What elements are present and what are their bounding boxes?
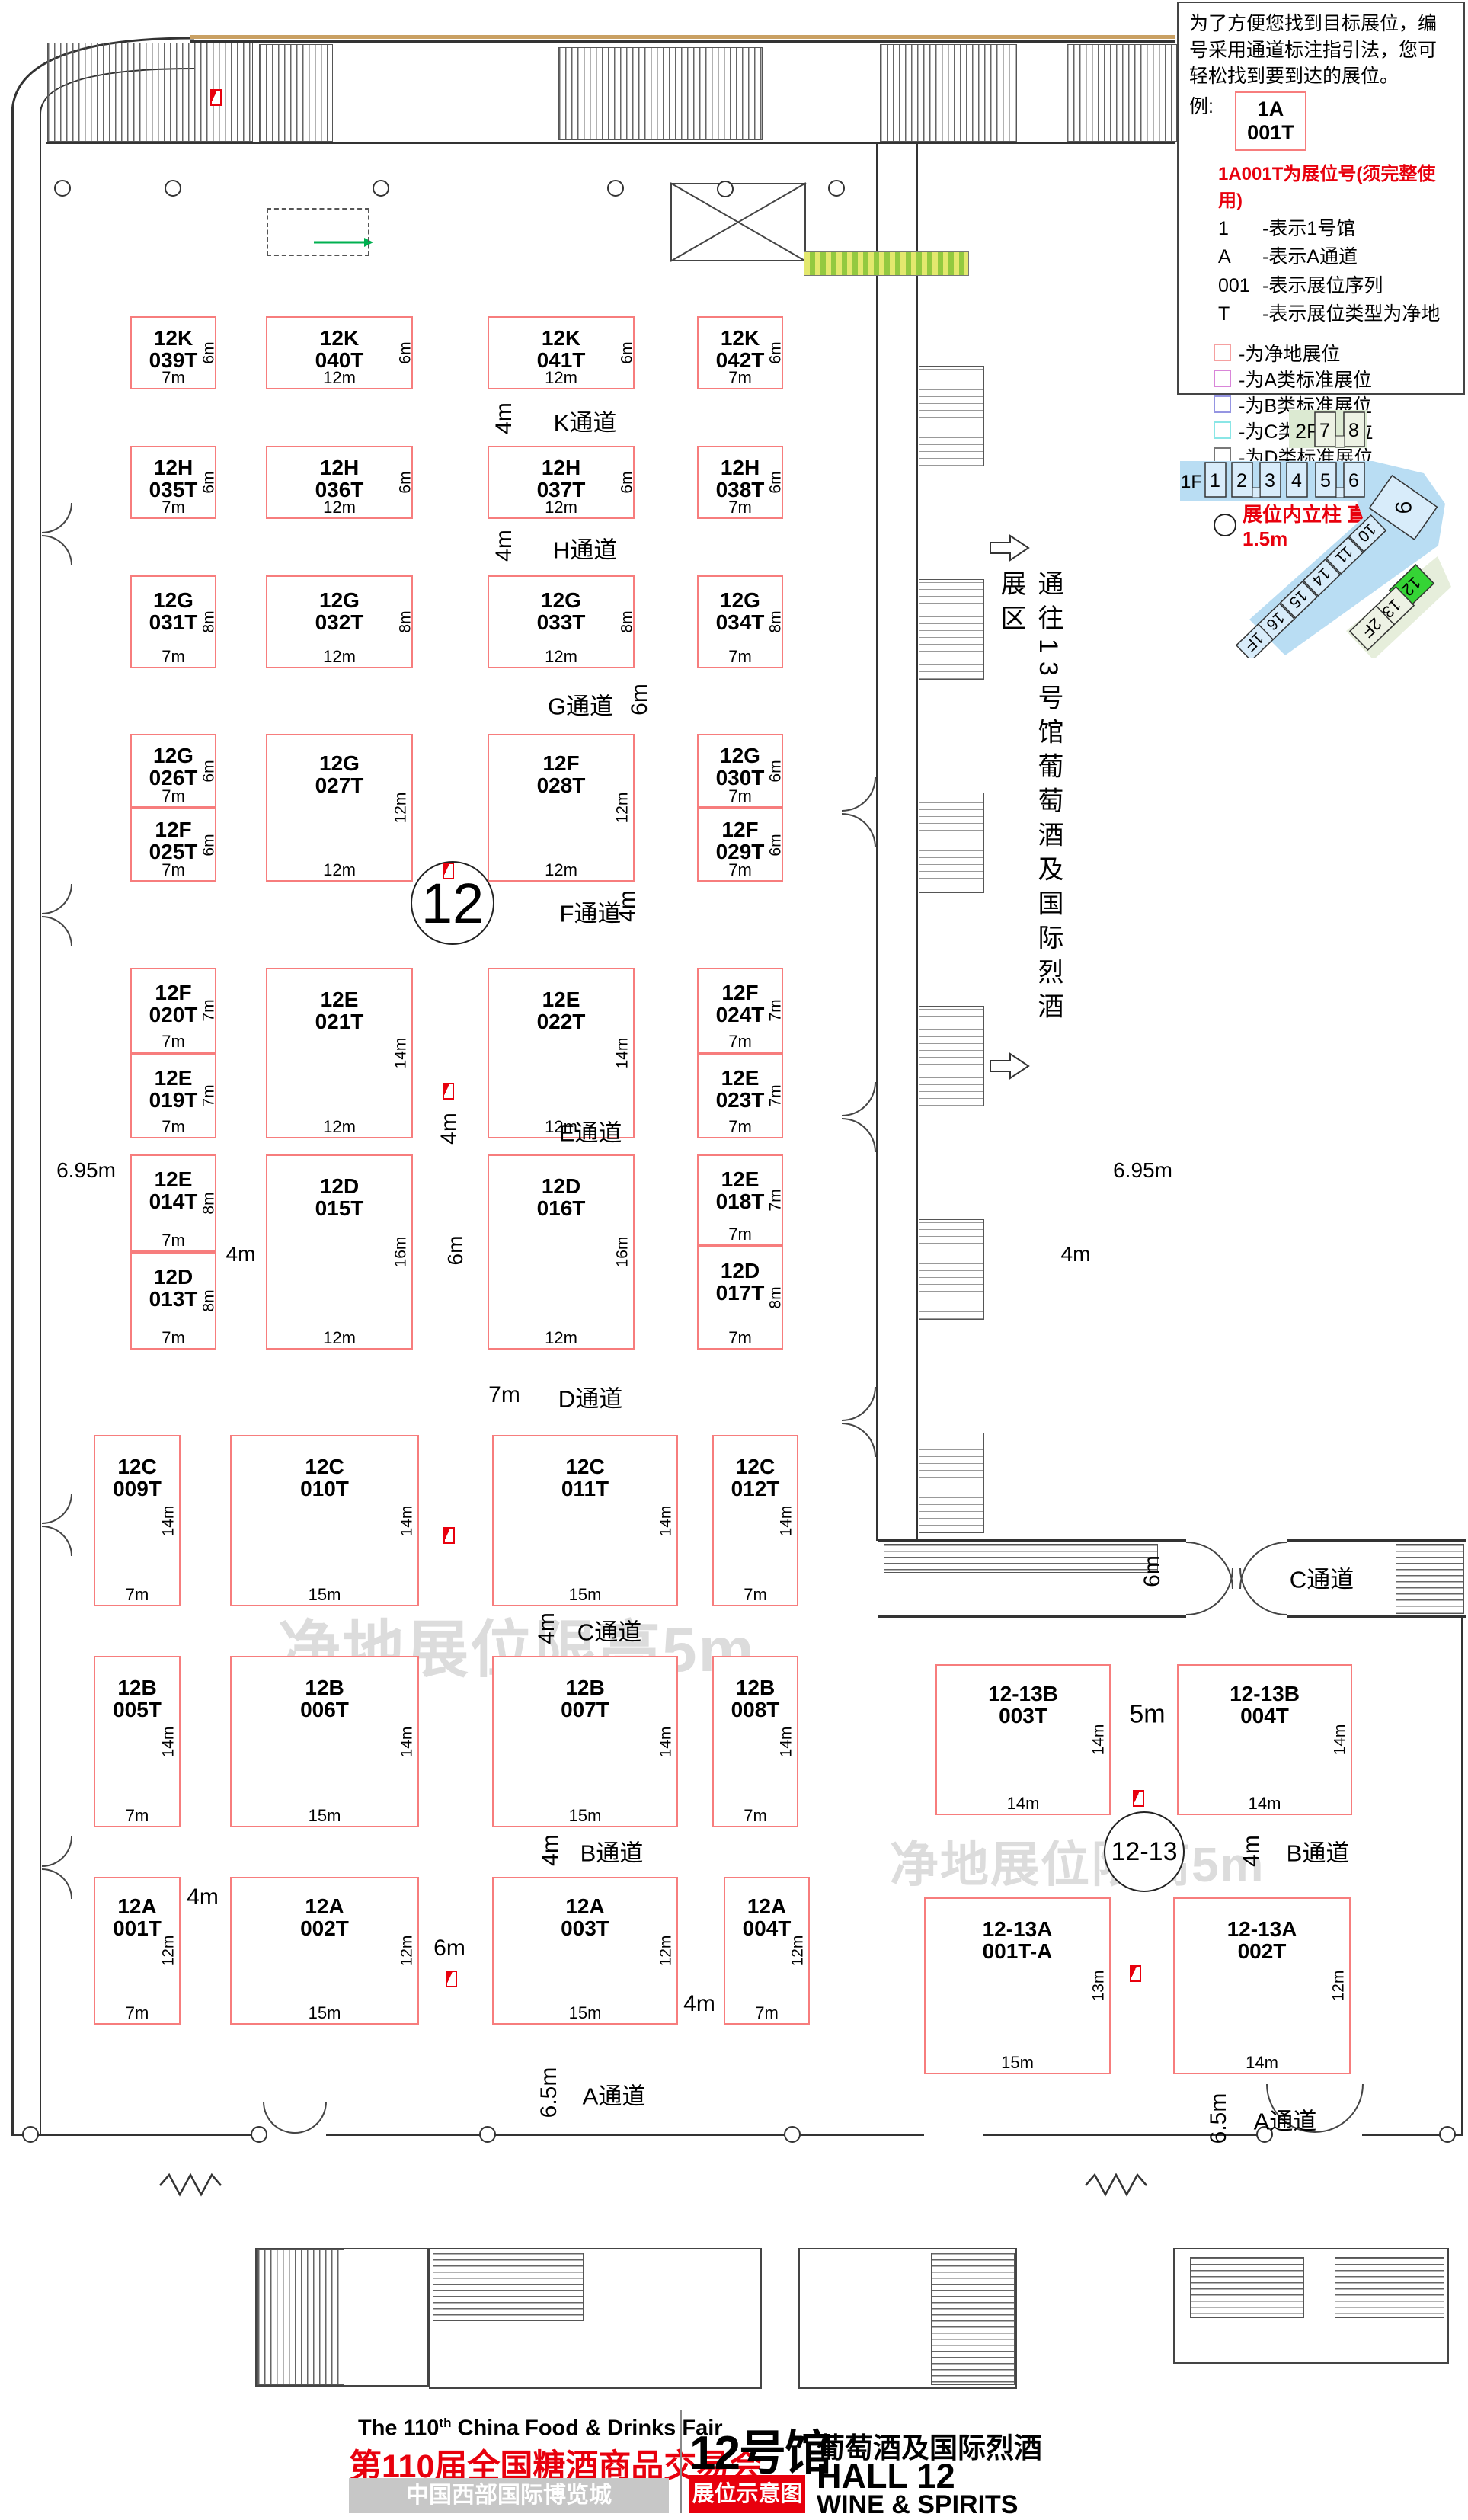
- legend-key-desc: -表示展位序列: [1262, 272, 1383, 301]
- fire-well-icon: [1133, 1790, 1144, 1807]
- booth-depth-label: 14m: [778, 1505, 796, 1536]
- arrow-right-icon: [990, 536, 1028, 560]
- booth-number: 12C010T: [232, 1455, 417, 1500]
- legend-key-row: 1-表示1号馆: [1218, 215, 1453, 244]
- hall-number-circle: 12-13: [1104, 1811, 1185, 1892]
- booth-width-label: 12m: [489, 647, 633, 667]
- aisle-label: B通道: [580, 1834, 644, 1868]
- booth-number: 12E021T: [267, 988, 411, 1033]
- wall-break-zigzag: [1086, 2175, 1147, 2195]
- booth-number: 12G031T: [132, 589, 215, 633]
- column-circle: [607, 180, 624, 197]
- booth-number: 12E022T: [489, 988, 633, 1033]
- dimension-label: 4m: [683, 1991, 715, 2017]
- booth-number: 12K042T: [699, 327, 782, 371]
- booth-12B-005T: 12B005T7m14m: [94, 1656, 181, 1827]
- stair-block: [1067, 44, 1177, 142]
- booth-depth-label: 14m: [392, 1038, 411, 1069]
- dimension-label: 7m: [488, 1382, 520, 1408]
- booth-number: 12H036T: [267, 456, 411, 501]
- booth-12E-018T: 12E018T7m7m: [697, 1154, 783, 1246]
- booth-12D-015T: 12D015T12m16m: [266, 1154, 413, 1350]
- venue-name: 中国西部国际博览城: [349, 2478, 669, 2513]
- svg-text:9: 9: [1390, 501, 1415, 514]
- aisle-label: C通道: [577, 1613, 641, 1647]
- booth-12A-004T: 12A004T7m12m: [724, 1877, 810, 2025]
- dimension-label: 4m: [1061, 1242, 1091, 1266]
- aisle-label: E通道: [559, 1114, 622, 1148]
- booth-number: 12F020T: [132, 981, 215, 1026]
- column-circle: [54, 180, 71, 197]
- booth-number: 12E018T: [699, 1168, 782, 1212]
- booth-12F-029T: 12F029T7m6m: [697, 808, 783, 882]
- booth-width-label: 14m: [1179, 1794, 1351, 1814]
- booth-12E-021T: 12E021T12m14m: [266, 968, 413, 1138]
- booth-number: 12H037T: [489, 456, 633, 501]
- booth-number: 12-13A002T: [1175, 1918, 1349, 1962]
- booth-depth-label: 14m: [657, 1726, 676, 1757]
- door-swing-arc: [42, 535, 72, 565]
- booth-12D-016T: 12D016T12m16m: [488, 1154, 635, 1350]
- booth-width-label: 15m: [232, 1806, 417, 1826]
- map-type-badge: 展位示意图: [689, 2475, 805, 2513]
- legend-example-note: 1A001T为展位号(须完整使用): [1218, 159, 1453, 212]
- minimap-floor1-label: 1F: [1181, 472, 1202, 492]
- booth-12K-041T: 12K041T12m6m: [488, 316, 635, 389]
- dimension-label: 4m: [437, 1113, 462, 1145]
- legend-key-row: T-表示展位类型为净地: [1218, 300, 1453, 329]
- booth-12E-022T: 12E022T12m14m: [488, 968, 635, 1138]
- booth-depth-label: 14m: [778, 1726, 796, 1757]
- booth-number: 12A003T: [494, 1895, 676, 1939]
- booth-type-label: -为A类标准展位: [1239, 365, 1372, 392]
- structure-outline: [1173, 2248, 1449, 2364]
- wall-segment: [326, 2134, 924, 2136]
- hall-name-cn: 12号馆: [689, 2414, 830, 2483]
- booth-12B-008T: 12B008T7m14m: [712, 1656, 798, 1827]
- fire-well-icon: [443, 863, 454, 879]
- svg-text:5: 5: [1320, 470, 1331, 492]
- booth-number: 12G034T: [699, 589, 782, 633]
- booth-width-label: 15m: [494, 1585, 676, 1605]
- door-swing-arc: [842, 1118, 876, 1152]
- example-booth-num: 001T: [1236, 121, 1305, 145]
- footer-divider: [680, 2410, 682, 2513]
- booth-number: 12E014T: [132, 1168, 215, 1212]
- booth-number: 12E019T: [132, 1067, 215, 1111]
- wall-segment: [11, 2134, 263, 2136]
- legend-key: A: [1218, 243, 1262, 272]
- booth-number: 12G032T: [267, 589, 411, 633]
- structure-outline: [670, 183, 806, 261]
- booth-width-label: 14m: [1175, 2053, 1349, 2073]
- aisle-label: H通道: [553, 531, 617, 565]
- booth-12F-025T: 12F025T7m6m: [130, 808, 216, 882]
- aisle-label: B通道: [1287, 1834, 1350, 1868]
- booth-depth-label: 16m: [614, 1237, 632, 1268]
- booth-width-label: 14m: [937, 1794, 1109, 1814]
- booth-number: 12C009T: [95, 1455, 179, 1500]
- wall-segment: [878, 142, 1175, 144]
- legend-type-row: -为A类标准展位: [1214, 367, 1453, 390]
- column-circle: [784, 2126, 801, 2143]
- booth-12C-011T: 12C011T15m14m: [492, 1435, 678, 1606]
- booth-12F-020T: 12F020T7m7m: [130, 968, 216, 1053]
- booth-number: 12F028T: [489, 752, 633, 796]
- booth-type-swatch: [1214, 344, 1231, 361]
- dimension-label: 4m: [1239, 1835, 1265, 1867]
- stair-pocket: [919, 1006, 984, 1106]
- legend-type-row: -为净地展位: [1214, 341, 1453, 364]
- booth-12G-031T: 12G031T7m8m: [130, 575, 216, 668]
- booth-depth-label: 12m: [657, 1936, 676, 1967]
- booth-width-label: 12m: [267, 1328, 411, 1348]
- booth-number: 12A001T: [95, 1895, 179, 1939]
- booth-12E-014T: 12E014T7m8m: [130, 1154, 216, 1252]
- legend-key: 001: [1218, 272, 1262, 301]
- legend-key-desc: -表示展位类型为净地: [1262, 300, 1440, 329]
- dimension-label: 4m: [538, 1834, 564, 1866]
- booth-width-label: 12m: [267, 1117, 411, 1137]
- title-block: The 110th China Food & Drinks Fair 第110届…: [0, 2393, 1468, 2520]
- dimension-label: 6.95m: [1113, 1158, 1172, 1183]
- booth-width-label: 15m: [494, 2003, 676, 2023]
- booth-depth-label: 14m: [160, 1726, 178, 1757]
- booth-width-label: 7m: [699, 1328, 782, 1348]
- svg-text:1: 1: [1210, 470, 1220, 492]
- stair-pocket: [919, 579, 984, 680]
- door-swing-arc: [1315, 2084, 1364, 2133]
- door-swing-arc: [42, 503, 72, 533]
- booth-12H-036T: 12H036T12m6m: [266, 446, 413, 519]
- fair-title-en-pre: The 110: [358, 2416, 439, 2441]
- booth-12D-013T: 12D013T7m8m: [130, 1252, 216, 1350]
- svg-text:8: 8: [1348, 420, 1359, 441]
- fair-title-en-post: China Food & Drinks Fair: [451, 2416, 722, 2441]
- wall-break-zigzag: [160, 2175, 221, 2195]
- booth-width-label: 15m: [926, 2053, 1109, 2073]
- booth-number: 12G033T: [489, 589, 633, 633]
- booth-depth-label: 12m: [392, 793, 411, 824]
- booth-depth-label: 14m: [398, 1726, 417, 1757]
- wall-segment: [11, 107, 14, 2135]
- booth-12B-007T: 12B007T15m14m: [492, 1656, 678, 1827]
- booth-width-label: 12m: [489, 1328, 633, 1348]
- aisle-label: D通道: [558, 1380, 622, 1414]
- dimension-label: 4m: [226, 1242, 256, 1266]
- booth-12E-019T: 12E019T7m7m: [130, 1053, 216, 1138]
- booth-12-13A-001T-A: 12-13A001T-A15m13m: [924, 1897, 1111, 2074]
- door-swing-arc: [295, 2102, 327, 2134]
- dimension-label: 4m: [534, 1612, 560, 1644]
- door-swing-arc: [1186, 1568, 1233, 1615]
- booth-12-13A-002T: 12-13A002T14m12m: [1173, 1897, 1351, 2074]
- door-swing-arc: [1239, 1568, 1287, 1615]
- booth-depth-label: 14m: [398, 1505, 417, 1536]
- aisle-label: F通道: [560, 895, 622, 929]
- dimension-label: 6.95m: [56, 1158, 116, 1183]
- booth-12H-038T: 12H038T7m6m: [697, 446, 783, 519]
- booth-12F-024T: 12F024T7m7m: [697, 968, 783, 1053]
- svg-text:6: 6: [1348, 470, 1359, 492]
- dimension-label: 6m: [627, 684, 653, 716]
- legend-key-row: 001-表示展位序列: [1218, 272, 1453, 301]
- svg-text:2: 2: [1236, 470, 1247, 492]
- booth-number: 12B005T: [95, 1676, 179, 1721]
- fair-title-en-sup: th: [439, 2416, 451, 2430]
- booth-width-label: 7m: [132, 1117, 215, 1137]
- wall-segment: [190, 35, 1175, 39]
- dimension-label: 4m: [187, 1884, 219, 1910]
- booth-12C-012T: 12C012T7m14m: [712, 1435, 798, 1606]
- booth-depth-label: 12m: [160, 1936, 178, 1967]
- stair-dashed-outline: [267, 208, 369, 256]
- booth-number: 12-13B003T: [937, 1683, 1109, 1727]
- dimension-label: 4m: [615, 890, 641, 922]
- dimension-label: 6m: [443, 1236, 468, 1266]
- booth-width-label: 7m: [132, 1231, 215, 1250]
- booth-width-label: 7m: [699, 647, 782, 667]
- booth-width-label: 7m: [132, 1328, 215, 1348]
- booth-12G-026T: 12G026T7m6m: [130, 734, 216, 808]
- booth-number: 12K040T: [267, 327, 411, 371]
- booth-number: 12A002T: [232, 1895, 417, 1939]
- booth-depth-label: 14m: [1332, 1724, 1350, 1756]
- booth-depth-label: 12m: [1330, 1971, 1348, 2002]
- aisle-label: A通道: [1254, 2102, 1317, 2137]
- booth-12-13B-003T: 12-13B003T14m14m: [935, 1664, 1111, 1815]
- booth-12A-001T: 12A001T7m12m: [94, 1877, 181, 2025]
- booth-width-label: 12m: [267, 860, 411, 880]
- stair-block: [1396, 1544, 1464, 1614]
- door-swing-arc: [263, 2102, 295, 2134]
- booth-type-label: -为净地展位: [1239, 339, 1340, 367]
- corridor-note: 通往13号馆葡萄酒及国际烈酒展区: [993, 570, 1067, 1058]
- fire-well-icon: [210, 89, 222, 106]
- column-circle: [828, 180, 845, 197]
- wall-segment: [876, 142, 878, 1541]
- column-circle: [1439, 2126, 1456, 2143]
- booth-number: 12B006T: [232, 1676, 417, 1721]
- aisle-label: A通道: [583, 2077, 646, 2112]
- dimension-label: 6.5m: [1206, 2093, 1232, 2144]
- column-circle: [251, 2126, 267, 2143]
- structure-outline: [429, 2248, 762, 2389]
- legend-panel: 为了方便您找到目标展位，编号采用通道标注指引法，您可轻松找到要到达的展位。 例:…: [1177, 2, 1465, 395]
- legend-key-row: A-表示A通道: [1218, 243, 1453, 272]
- column-circle: [479, 2126, 496, 2143]
- wall-segment: [916, 142, 918, 1541]
- booth-width-label: 15m: [232, 2003, 417, 2023]
- dimension-label: 6.5m: [536, 2067, 562, 2118]
- legend-key-list: 1-表示1号馆A-表示A通道001-表示展位序列T-表示展位类型为净地: [1189, 215, 1453, 329]
- booth-width-label: 7m: [714, 1806, 797, 1826]
- aisle-label: K通道: [554, 404, 617, 438]
- booth-depth-label: 13m: [1090, 1971, 1108, 2002]
- wall-segment: [46, 142, 878, 144]
- stair-block: [558, 47, 763, 140]
- booth-number: 12F025T: [132, 818, 215, 863]
- legend-key: 1: [1218, 215, 1262, 244]
- column-circle: [373, 180, 389, 197]
- booth-number: 12-13B004T: [1179, 1683, 1351, 1727]
- aisle-label: C通道: [1290, 1561, 1354, 1595]
- structure-outline: [798, 2248, 1017, 2389]
- booth-number: 12G027T: [267, 752, 411, 796]
- booth-number: 12K039T: [132, 327, 215, 371]
- booth-12G-034T: 12G034T7m8m: [697, 575, 783, 668]
- hall-category-en: WINE & SPIRITS: [817, 2490, 1018, 2520]
- door-swing-arc: [42, 1868, 72, 1899]
- booth-12B-006T: 12B006T15m14m: [230, 1656, 419, 1827]
- dimension-label: 6m: [433, 1936, 465, 1961]
- booth-number: 12-13A001T-A: [926, 1918, 1109, 1962]
- stair-block: [880, 44, 1017, 142]
- legend-example-label: 例:: [1189, 91, 1214, 119]
- booth-width-label: 7m: [132, 1032, 215, 1052]
- booth-12H-035T: 12H035T7m6m: [130, 446, 216, 519]
- wall-segment: [878, 1539, 1186, 1542]
- booth-width-label: 15m: [494, 1806, 676, 1826]
- legend-example-booth: 1A 001T: [1235, 91, 1306, 151]
- escalator-stripes: [804, 251, 969, 276]
- booth-number: 12C012T: [714, 1455, 797, 1500]
- booth-type-swatch: [1214, 370, 1231, 387]
- svg-text:4: 4: [1291, 470, 1302, 492]
- door-swing-arc: [42, 1494, 72, 1524]
- stair-pocket: [919, 793, 984, 893]
- booth-12A-003T: 12A003T15m12m: [492, 1877, 678, 2025]
- booth-12G-032T: 12G032T12m8m: [266, 575, 413, 668]
- booth-number: 12F024T: [699, 981, 782, 1026]
- booth-12D-017T: 12D017T7m8m: [697, 1246, 783, 1350]
- booth-width-label: 7m: [714, 1585, 797, 1605]
- booth-12G-030T: 12G030T7m6m: [697, 734, 783, 808]
- aisle-label: G通道: [548, 687, 613, 722]
- door-swing-arc: [42, 916, 72, 946]
- booth-depth-label: 12m: [398, 1936, 417, 1967]
- wall-segment: [1287, 1539, 1466, 1542]
- stair-pocket: [919, 366, 984, 466]
- fair-title-en: The 110th China Food & Drinks Fair: [358, 2416, 723, 2442]
- door-swing-arc: [42, 884, 72, 914]
- booth-number: 12K041T: [489, 327, 633, 371]
- dimension-label: 5m: [1129, 1700, 1165, 1730]
- booth-width-label: 7m: [95, 1585, 179, 1605]
- booth-depth-label: 14m: [657, 1505, 676, 1536]
- booth-12E-023T: 12E023T7m7m: [697, 1053, 783, 1138]
- booth-12H-037T: 12H037T12m6m: [488, 446, 635, 519]
- wall-segment: [40, 107, 41, 2135]
- booth-depth-label: 16m: [392, 1237, 411, 1268]
- door-swing-arc: [842, 1423, 876, 1457]
- booth-number: 12G026T: [132, 744, 215, 789]
- legend-key: T: [1218, 300, 1262, 329]
- booth-number: 12D013T: [132, 1266, 215, 1310]
- wall-segment: [878, 1615, 1186, 1618]
- booth-12K-042T: 12K042T7m6m: [697, 316, 783, 389]
- booth-width-label: 12m: [489, 860, 633, 880]
- hall-locator-minimap: 2F781F123456910111415161F12132F: [1171, 395, 1468, 658]
- booth-number: 12H038T: [699, 456, 782, 501]
- booth-number: 12D015T: [267, 1175, 411, 1219]
- booth-width-label: 15m: [232, 1585, 417, 1605]
- wall-segment: [1287, 1615, 1466, 1618]
- svg-text:3: 3: [1265, 470, 1275, 492]
- booth-number: 12E023T: [699, 1067, 782, 1111]
- column-circle: [165, 180, 181, 197]
- floorplan-hall12: 为了方便您找到目标展位，编号采用通道标注指引法，您可轻松找到要到达的展位。 例:…: [0, 0, 1468, 2520]
- wall-segment: [1461, 1615, 1463, 2135]
- booth-number: 12G030T: [699, 744, 782, 789]
- legend-key-desc: -表示A通道: [1262, 243, 1358, 272]
- stair-block: [47, 43, 253, 142]
- booth-depth-label: 12m: [789, 1936, 808, 1967]
- wall-segment: [190, 40, 1175, 43]
- column-circle: [717, 181, 734, 197]
- booth-depth-label: 14m: [614, 1038, 632, 1069]
- booth-12G-027T: 12G027T12m12m: [266, 734, 413, 882]
- booth-number: 12D017T: [699, 1260, 782, 1304]
- legend-intro: 为了方便您找到目标展位，编号采用通道标注指引法，您可轻松找到要到达的展位。: [1189, 11, 1453, 90]
- booth-12G-033T: 12G033T12m8m: [488, 575, 635, 668]
- booth-number: 12C011T: [494, 1455, 676, 1500]
- booth-width-label: 7m: [699, 1225, 782, 1244]
- legend-key-desc: -表示1号馆: [1262, 215, 1355, 244]
- stair-block: [259, 44, 333, 142]
- booth-depth-label: 14m: [1090, 1724, 1108, 1756]
- column-circle: [22, 2126, 39, 2143]
- stair-pocket: [919, 1219, 984, 1320]
- booth-number: 12F029T: [699, 818, 782, 863]
- door-swing-arc: [42, 1836, 72, 1867]
- booth-number: 12B007T: [494, 1676, 676, 1721]
- height-limit-watermark: 净地展位限高5m: [890, 1826, 1265, 1896]
- fire-well-icon: [446, 1971, 457, 1987]
- booth-number: 12B008T: [714, 1676, 797, 1721]
- booth-12K-040T: 12K040T12m6m: [266, 316, 413, 389]
- booth-number: 12H035T: [132, 456, 215, 501]
- booth-12A-002T: 12A002T15m12m: [230, 1877, 419, 2025]
- door-swing-arc: [842, 1082, 876, 1116]
- booth-width-label: 7m: [699, 1117, 782, 1137]
- booth-depth-label: 12m: [614, 793, 632, 824]
- booth-width-label: 7m: [699, 1032, 782, 1052]
- booth-12F-028T: 12F028T12m12m: [488, 734, 635, 882]
- booth-12-13B-004T: 12-13B004T14m14m: [1177, 1664, 1352, 1815]
- booth-12K-039T: 12K039T7m6m: [130, 316, 216, 389]
- svg-text:7: 7: [1319, 420, 1330, 441]
- dimension-label: 4m: [491, 530, 517, 562]
- booth-12C-009T: 12C009T7m14m: [94, 1435, 181, 1606]
- booth-width-label: 7m: [95, 1806, 179, 1826]
- booth-number: 12D016T: [489, 1175, 633, 1219]
- door-swing-arc: [842, 813, 876, 847]
- fire-well-icon: [1130, 1965, 1141, 1982]
- booth-width-label: 12m: [267, 647, 411, 667]
- stair-pocket: [919, 1433, 984, 1533]
- stair-block: [884, 1544, 1158, 1573]
- example-booth-hall: 1A: [1236, 98, 1305, 121]
- booth-depth-label: 14m: [160, 1505, 178, 1536]
- door-swing-arc: [42, 1526, 72, 1556]
- dimension-label: 6m: [1140, 1555, 1166, 1587]
- door-swing-arc: [842, 1387, 876, 1421]
- booth-width-label: 7m: [95, 2003, 179, 2023]
- fire-well-icon: [443, 1083, 454, 1100]
- booth-number: 12A004T: [725, 1895, 808, 1939]
- booth-width-label: 7m: [132, 647, 215, 667]
